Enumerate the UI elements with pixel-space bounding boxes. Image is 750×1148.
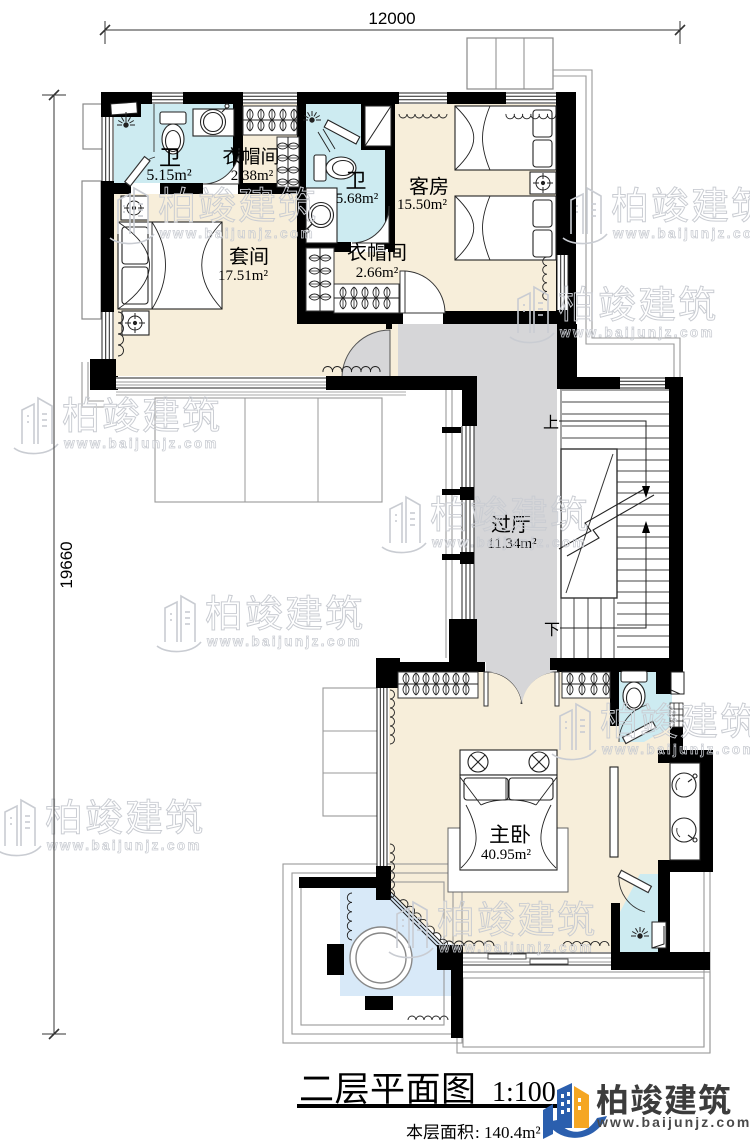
svg-text:17.51m²: 17.51m² — [218, 268, 268, 284]
svg-text:5.15m²: 5.15m² — [146, 167, 191, 184]
svg-text:www.baijunjz.com: www.baijunjz.com — [601, 742, 750, 757]
svg-text:www.baijunjz.com: www.baijunjz.com — [159, 226, 315, 241]
svg-text:40.95m²: 40.95m² — [481, 847, 531, 863]
svg-text:www.baijunjz.com: www.baijunjz.com — [431, 535, 587, 550]
svg-text:: 140.4m²: : 140.4m² — [475, 1123, 541, 1142]
svg-text:1:100: 1:100 — [492, 1077, 556, 1108]
svg-text:19660: 19660 — [57, 541, 76, 588]
svg-text:www.baijunjz.com: www.baijunjz.com — [438, 940, 594, 955]
svg-text:www.baijunjz.com: www.baijunjz.com — [63, 436, 219, 451]
svg-text:5.68m²: 5.68m² — [336, 191, 379, 207]
svg-text:15.50m²: 15.50m² — [397, 197, 447, 213]
svg-text:2.66m²: 2.66m² — [356, 265, 399, 281]
svg-text:www.baijunjz.com: www.baijunjz.com — [596, 1114, 750, 1130]
svg-text:2.38m²: 2.38m² — [231, 168, 274, 184]
svg-text:12000: 12000 — [368, 9, 415, 28]
svg-text:www.baijunjz.com: www.baijunjz.com — [612, 226, 750, 241]
svg-text:www.baijunjz.com: www.baijunjz.com — [559, 325, 715, 340]
svg-text:www.baijunjz.com: www.baijunjz.com — [46, 838, 202, 853]
svg-text:www.baijunjz.com: www.baijunjz.com — [206, 634, 362, 649]
